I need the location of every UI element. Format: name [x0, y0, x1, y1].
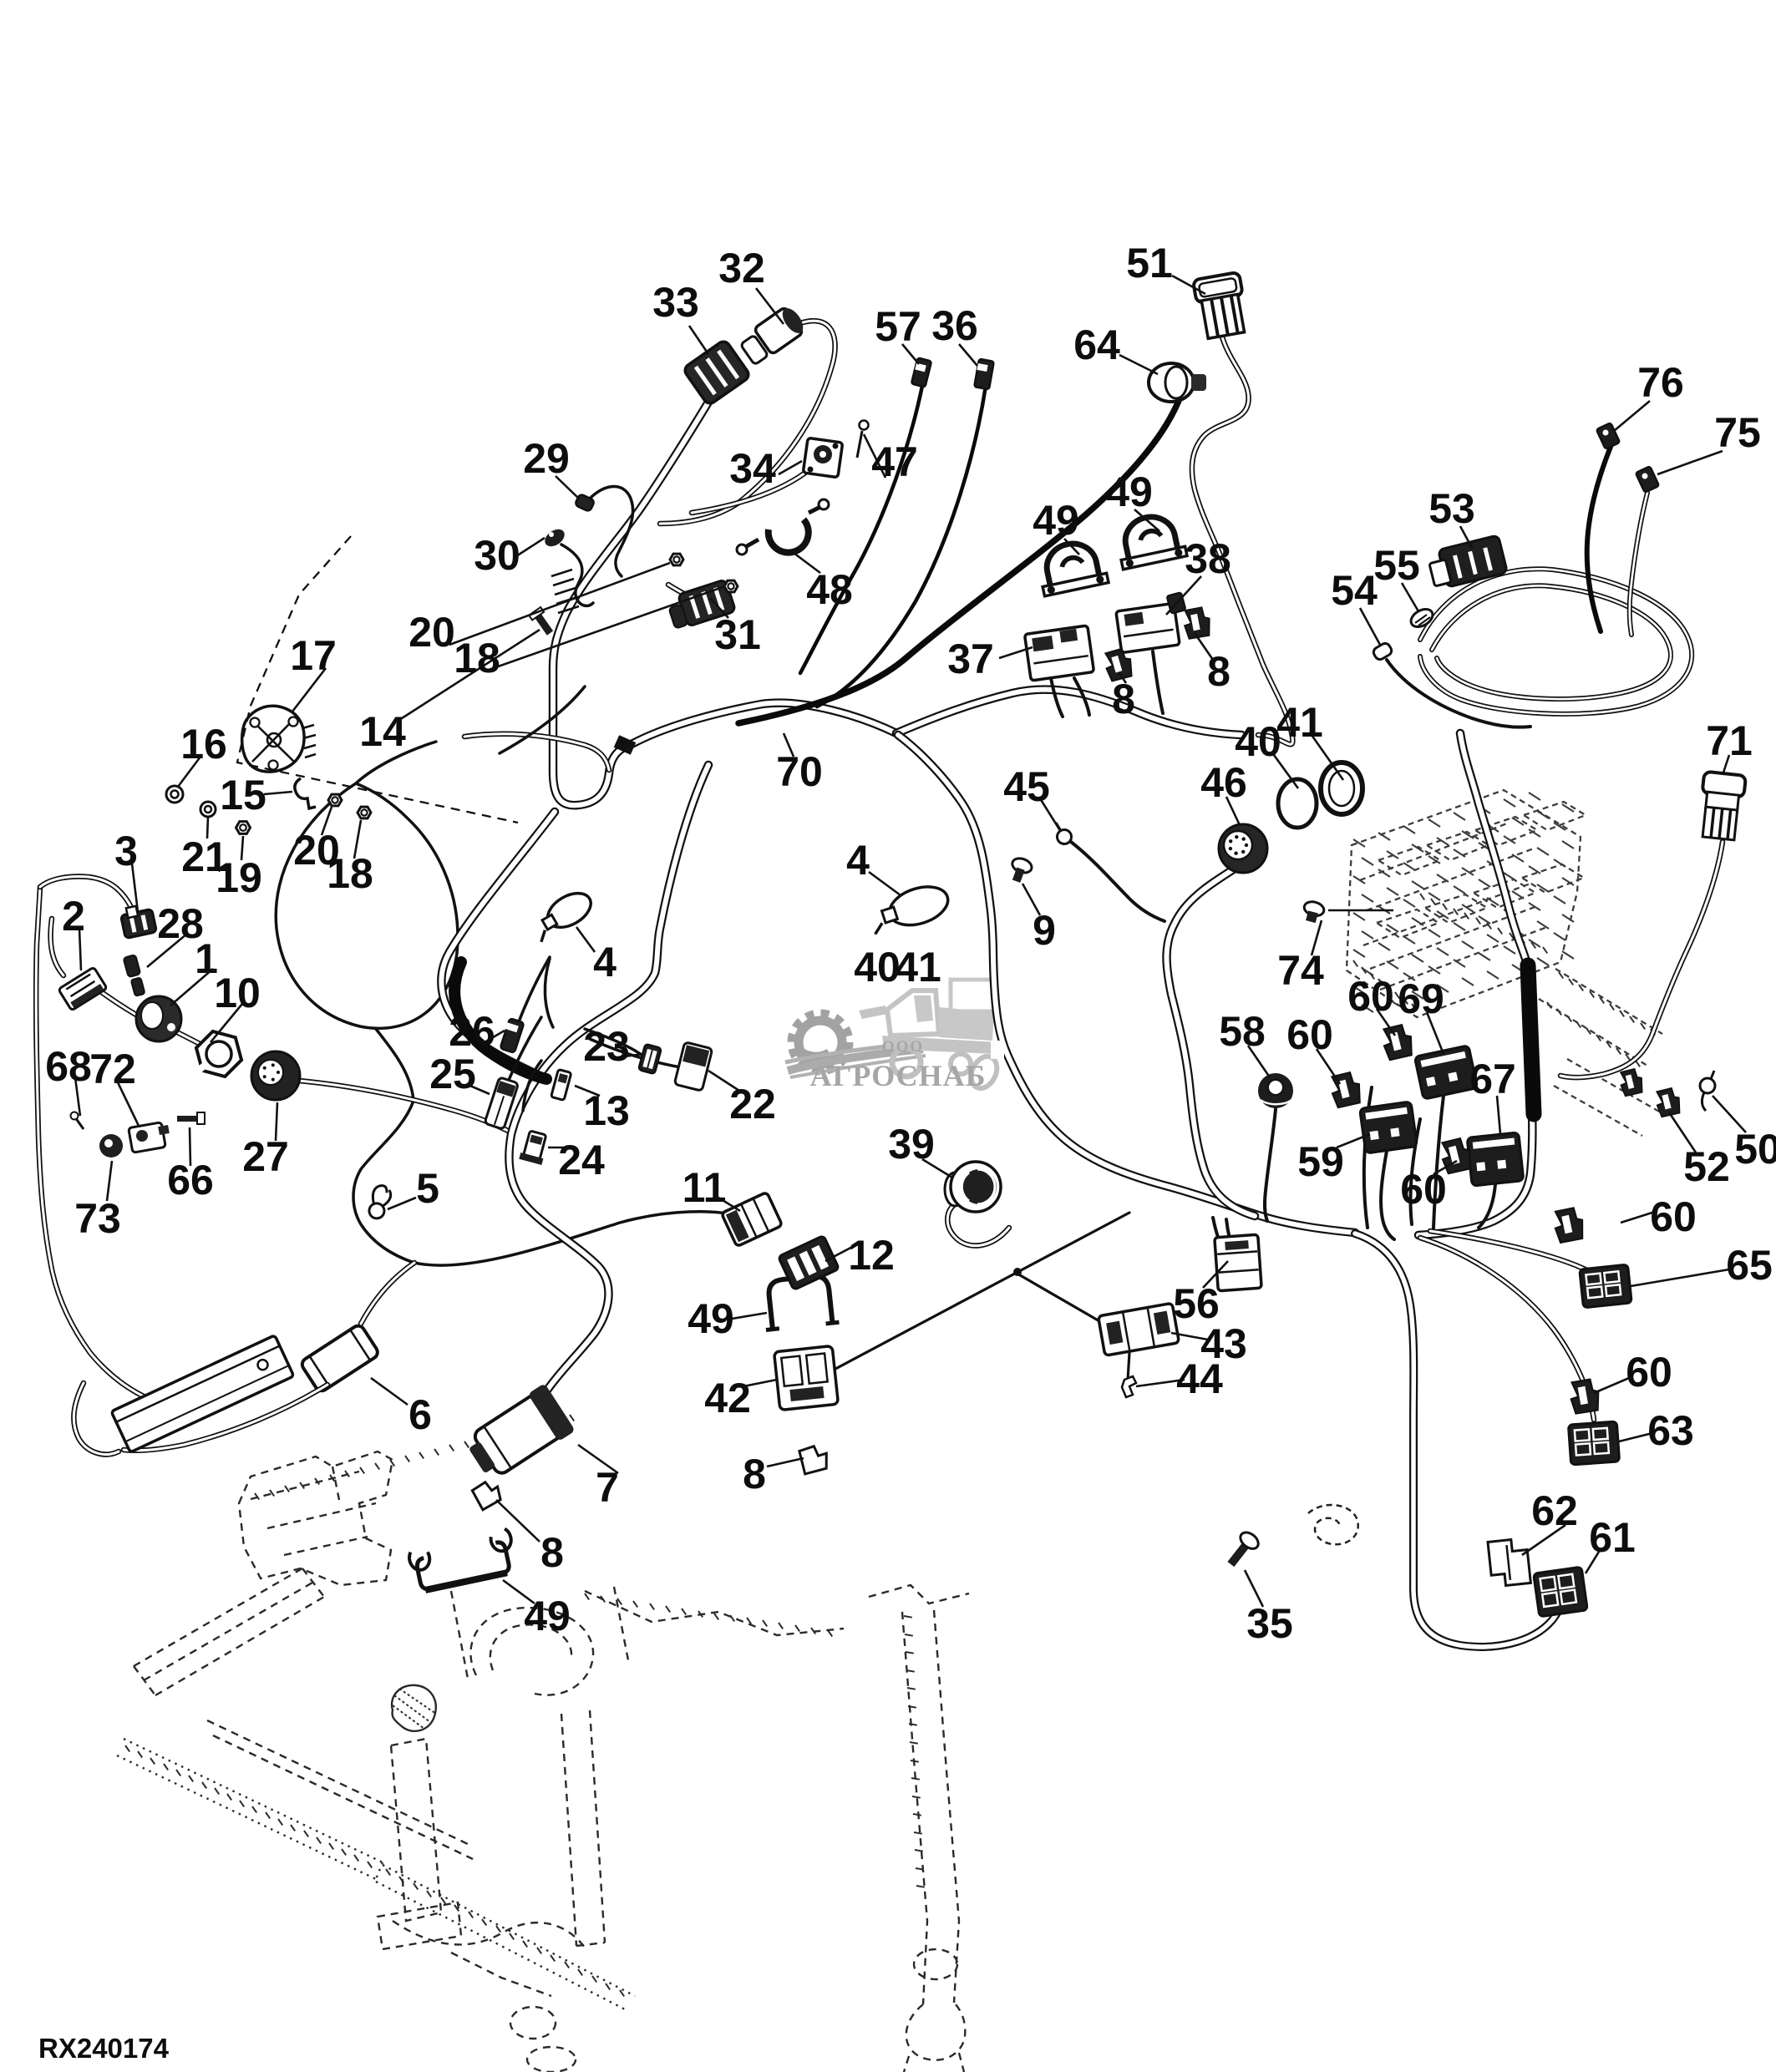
svg-text:55: 55: [1373, 542, 1420, 589]
svg-text:17: 17: [290, 632, 337, 679]
svg-text:24: 24: [558, 1137, 605, 1183]
svg-text:41: 41: [895, 944, 941, 990]
svg-text:53: 53: [1428, 485, 1475, 532]
svg-text:40: 40: [854, 944, 901, 990]
svg-text:76: 76: [1637, 359, 1684, 406]
svg-text:73: 73: [74, 1195, 121, 1242]
svg-text:RX240174: RX240174: [38, 2033, 170, 2064]
svg-text:67: 67: [1469, 1056, 1516, 1102]
svg-text:15: 15: [220, 772, 266, 818]
svg-text:50: 50: [1734, 1126, 1776, 1173]
svg-text:47: 47: [871, 438, 918, 485]
svg-text:20: 20: [408, 609, 455, 656]
svg-text:4: 4: [846, 837, 870, 884]
svg-text:36: 36: [931, 302, 978, 349]
svg-text:74: 74: [1277, 947, 1324, 994]
svg-text:5: 5: [416, 1165, 439, 1212]
svg-text:2: 2: [62, 893, 85, 940]
svg-text:АГРОСНАБ: АГРОСНАБ: [810, 1059, 987, 1092]
svg-text:19: 19: [216, 854, 262, 901]
svg-text:35: 35: [1246, 1600, 1293, 1647]
svg-text:60: 60: [1650, 1193, 1697, 1240]
svg-text:31: 31: [714, 611, 761, 658]
svg-text:18: 18: [327, 850, 373, 897]
svg-text:10: 10: [214, 970, 261, 1016]
svg-text:42: 42: [704, 1375, 751, 1421]
svg-text:48: 48: [806, 566, 853, 613]
svg-text:39: 39: [888, 1121, 935, 1168]
svg-text:33: 33: [652, 279, 699, 326]
svg-text:54: 54: [1331, 567, 1378, 614]
svg-text:70: 70: [776, 748, 823, 795]
svg-text:8: 8: [540, 1529, 564, 1576]
svg-text:41: 41: [1276, 699, 1323, 746]
svg-text:60: 60: [1400, 1166, 1447, 1213]
svg-text:8: 8: [743, 1451, 766, 1497]
svg-text:59: 59: [1297, 1138, 1344, 1185]
svg-text:65: 65: [1726, 1242, 1773, 1289]
svg-text:68: 68: [45, 1043, 92, 1090]
svg-text:72: 72: [89, 1046, 136, 1092]
svg-text:14: 14: [359, 708, 406, 755]
svg-text:32: 32: [718, 245, 765, 291]
svg-text:61: 61: [1589, 1514, 1636, 1561]
svg-text:38: 38: [1185, 535, 1231, 582]
svg-text:60: 60: [1286, 1011, 1333, 1058]
svg-text:49: 49: [1106, 469, 1153, 515]
svg-text:37: 37: [947, 636, 994, 682]
svg-text:51: 51: [1126, 240, 1173, 286]
svg-text:11: 11: [682, 1164, 727, 1211]
svg-text:64: 64: [1073, 322, 1120, 368]
svg-text:18: 18: [454, 635, 500, 681]
svg-text:75: 75: [1714, 409, 1761, 456]
svg-text:69: 69: [1398, 975, 1444, 1022]
svg-text:26: 26: [449, 1008, 495, 1055]
svg-text:OOO: OOO: [882, 1038, 924, 1056]
svg-text:27: 27: [242, 1133, 289, 1180]
svg-text:8: 8: [1207, 648, 1231, 695]
svg-text:60: 60: [1626, 1349, 1672, 1396]
svg-text:6: 6: [408, 1391, 432, 1438]
svg-text:9: 9: [1033, 907, 1056, 954]
svg-text:7: 7: [596, 1464, 619, 1511]
svg-text:23: 23: [583, 1023, 630, 1070]
svg-text:58: 58: [1219, 1008, 1266, 1055]
svg-text:66: 66: [167, 1157, 214, 1203]
svg-text:3: 3: [114, 828, 138, 874]
svg-text:34: 34: [729, 445, 776, 492]
svg-text:29: 29: [523, 435, 570, 482]
svg-text:52: 52: [1683, 1143, 1730, 1190]
svg-text:4: 4: [593, 939, 617, 985]
svg-text:44: 44: [1176, 1355, 1223, 1402]
svg-text:63: 63: [1647, 1407, 1694, 1454]
svg-text:30: 30: [474, 532, 520, 579]
svg-text:8: 8: [1112, 676, 1135, 722]
svg-text:25: 25: [429, 1051, 476, 1097]
svg-text:62: 62: [1531, 1487, 1578, 1534]
svg-text:46: 46: [1200, 759, 1247, 806]
svg-text:60: 60: [1347, 973, 1394, 1020]
svg-text:22: 22: [729, 1081, 776, 1127]
svg-text:16: 16: [180, 721, 227, 768]
svg-text:57: 57: [875, 303, 921, 350]
svg-text:49: 49: [1033, 497, 1079, 544]
svg-text:13: 13: [583, 1087, 630, 1134]
svg-text:12: 12: [848, 1232, 895, 1279]
svg-text:40: 40: [1235, 718, 1281, 765]
svg-text:49: 49: [524, 1593, 571, 1639]
svg-text:49: 49: [688, 1295, 734, 1342]
svg-text:71: 71: [1706, 717, 1753, 764]
svg-text:45: 45: [1003, 763, 1050, 810]
